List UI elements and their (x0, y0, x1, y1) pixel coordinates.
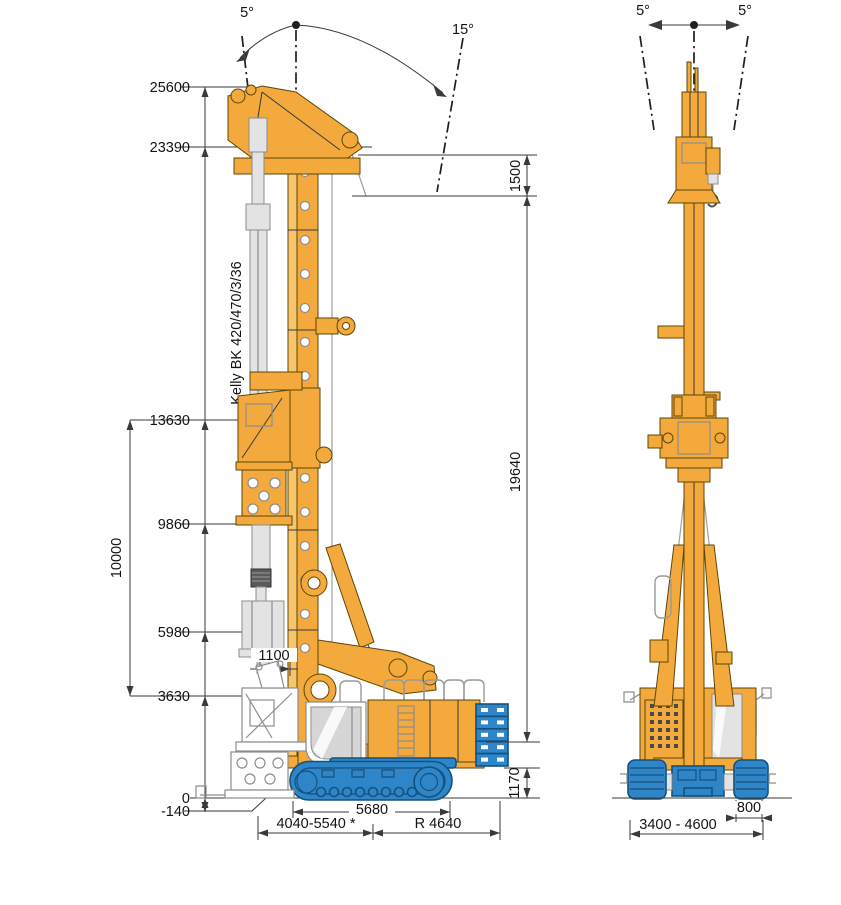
mirror-left (624, 692, 640, 702)
sheave (342, 132, 358, 148)
dim-3400-4600-label: 3400 - 4600 (639, 817, 716, 833)
counterweight-stack (476, 704, 508, 766)
swivel-stem (252, 152, 264, 204)
top-rod (695, 68, 698, 94)
crawler-track-side (290, 762, 452, 801)
side-tilt-forward-label: 15° (452, 22, 474, 38)
drive-flange-top (236, 462, 292, 470)
winch-hub (308, 577, 320, 589)
bottom-dimensions-side: 5680 4040-5540 * R 4640 (258, 801, 500, 840)
cathead (228, 86, 362, 162)
rotary-arm (648, 435, 662, 448)
mast-cylinder (326, 544, 374, 648)
tilt-arc (240, 25, 443, 93)
tilt-line-forward (437, 38, 463, 192)
height-9860: 9860 (158, 517, 190, 533)
dim-5680-label: 5680 (356, 802, 388, 818)
side-view: 5° 15° 25600 23390 13630 (109, 5, 540, 840)
dim-10000-label: 10000 (109, 538, 125, 578)
body-detail (684, 788, 712, 796)
dim-reach-label: 4040-5540 * (276, 816, 355, 832)
guide-roller (316, 447, 332, 463)
track-front-right (734, 760, 768, 799)
mirror-right (756, 688, 771, 700)
roller-hub (343, 323, 350, 330)
shock-absorber (251, 569, 271, 587)
winch-drum (311, 681, 329, 699)
height-3630: 3630 (158, 689, 190, 705)
track-front-left (628, 760, 666, 799)
support-leg-right (704, 545, 734, 706)
drive-flange-bottom (236, 516, 292, 525)
pivot-dot (292, 21, 300, 29)
undercarriage-front (612, 760, 792, 799)
carriage-top (250, 372, 302, 390)
kelly-bar-label: Kelly BK 420/470/3/36 (229, 261, 245, 405)
kelly-swivel (249, 118, 267, 152)
height-minus140: -140 (161, 804, 190, 820)
engine-housing (368, 700, 480, 762)
front-view: 5° 5° (612, 3, 792, 840)
rig-dimension-diagram: 5° 15° 25600 23390 13630 (0, 0, 841, 905)
rope-guide-bracket (316, 318, 338, 334)
swivel-block (246, 204, 270, 230)
excavation-step-line (184, 798, 266, 811)
top-rod (687, 62, 691, 94)
dim-800-label: 800 (737, 800, 761, 816)
carriage (286, 388, 320, 468)
sheave (246, 85, 256, 95)
dim-1170-label: 1170 (507, 767, 523, 798)
diagram-canvas: 5° 15° 25600 23390 13630 (0, 0, 841, 905)
mast-flare (668, 190, 720, 203)
height-13630: 13630 (150, 413, 190, 429)
drilling-tool (242, 601, 284, 653)
tilt-line-left (640, 36, 654, 130)
side-box-right (716, 652, 732, 664)
sheave (231, 89, 245, 103)
hook-weight (708, 174, 718, 184)
height-5980: 5980 (158, 625, 190, 641)
height-23390: 23390 (150, 140, 190, 156)
rotary-collar (678, 468, 710, 482)
side-tilt-back-label: 5° (240, 5, 254, 21)
rotary-drive-front (648, 395, 728, 482)
mast-head-side (228, 85, 362, 174)
rotary-base (666, 458, 722, 468)
dim-19640-label: 19640 (508, 452, 524, 492)
drive-sprocket (414, 767, 444, 797)
aux-hoist-block (706, 148, 720, 174)
frame-post (706, 397, 714, 416)
casing-flange (225, 790, 294, 798)
support-leg-left (654, 545, 684, 706)
head-pulley-case (682, 92, 706, 137)
mast-bracket-left (658, 326, 684, 338)
tool-link (256, 587, 266, 601)
height-25600: 25600 (150, 80, 190, 96)
kelly-stub (252, 525, 270, 569)
front-tilt-right-label: 5° (738, 3, 752, 19)
frame-post (674, 397, 682, 416)
dim-radius-label: R 4640 (415, 816, 462, 832)
dim-1500-label: 1500 (508, 160, 524, 192)
side-box-left (650, 640, 668, 662)
frame-base (236, 742, 306, 751)
pivot (389, 659, 407, 677)
tilt-line-right (734, 36, 748, 130)
pivot-dot (690, 21, 698, 29)
bottom-dimensions-front: 800 3400 - 4600 (630, 800, 772, 840)
front-tilt-left-label: 5° (636, 3, 650, 19)
